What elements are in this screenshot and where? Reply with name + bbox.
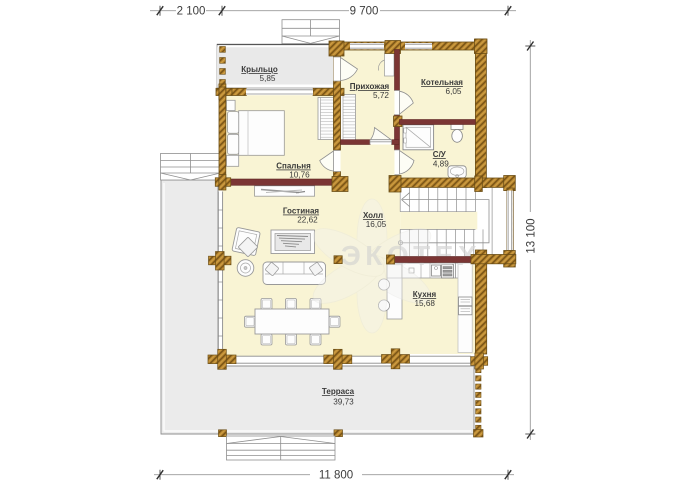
svg-text:10,76: 10,76 xyxy=(289,170,310,179)
svg-text:Холл: Холл xyxy=(363,211,383,220)
svg-text:Спальня: Спальня xyxy=(276,162,311,171)
svg-text:15,68: 15,68 xyxy=(414,299,435,308)
svg-text:Терраса: Терраса xyxy=(322,387,355,396)
svg-text:Котельная: Котельная xyxy=(421,78,463,87)
svg-text:16,05: 16,05 xyxy=(366,220,387,229)
svg-text:11 800: 11 800 xyxy=(319,470,353,482)
svg-text:4,89: 4,89 xyxy=(433,160,449,169)
svg-text:9 700: 9 700 xyxy=(350,6,379,18)
svg-text:Крыльцо: Крыльцо xyxy=(241,65,278,74)
svg-text:ЭКОТЕХ: ЭКОТЕХ xyxy=(341,240,481,271)
svg-text:С/У: С/У xyxy=(433,150,447,159)
svg-text:22,62: 22,62 xyxy=(297,216,318,225)
svg-text:Гостиная: Гостиная xyxy=(283,207,319,216)
svg-text:13 100: 13 100 xyxy=(525,218,537,253)
svg-text:Прихожая: Прихожая xyxy=(350,82,390,91)
svg-text:5,85: 5,85 xyxy=(260,74,276,83)
svg-text:6,05: 6,05 xyxy=(446,87,462,96)
svg-text:Кухня: Кухня xyxy=(413,290,437,299)
svg-text:2 100: 2 100 xyxy=(177,6,206,18)
svg-text:5,72: 5,72 xyxy=(373,91,389,100)
svg-text:39,73: 39,73 xyxy=(333,398,354,407)
